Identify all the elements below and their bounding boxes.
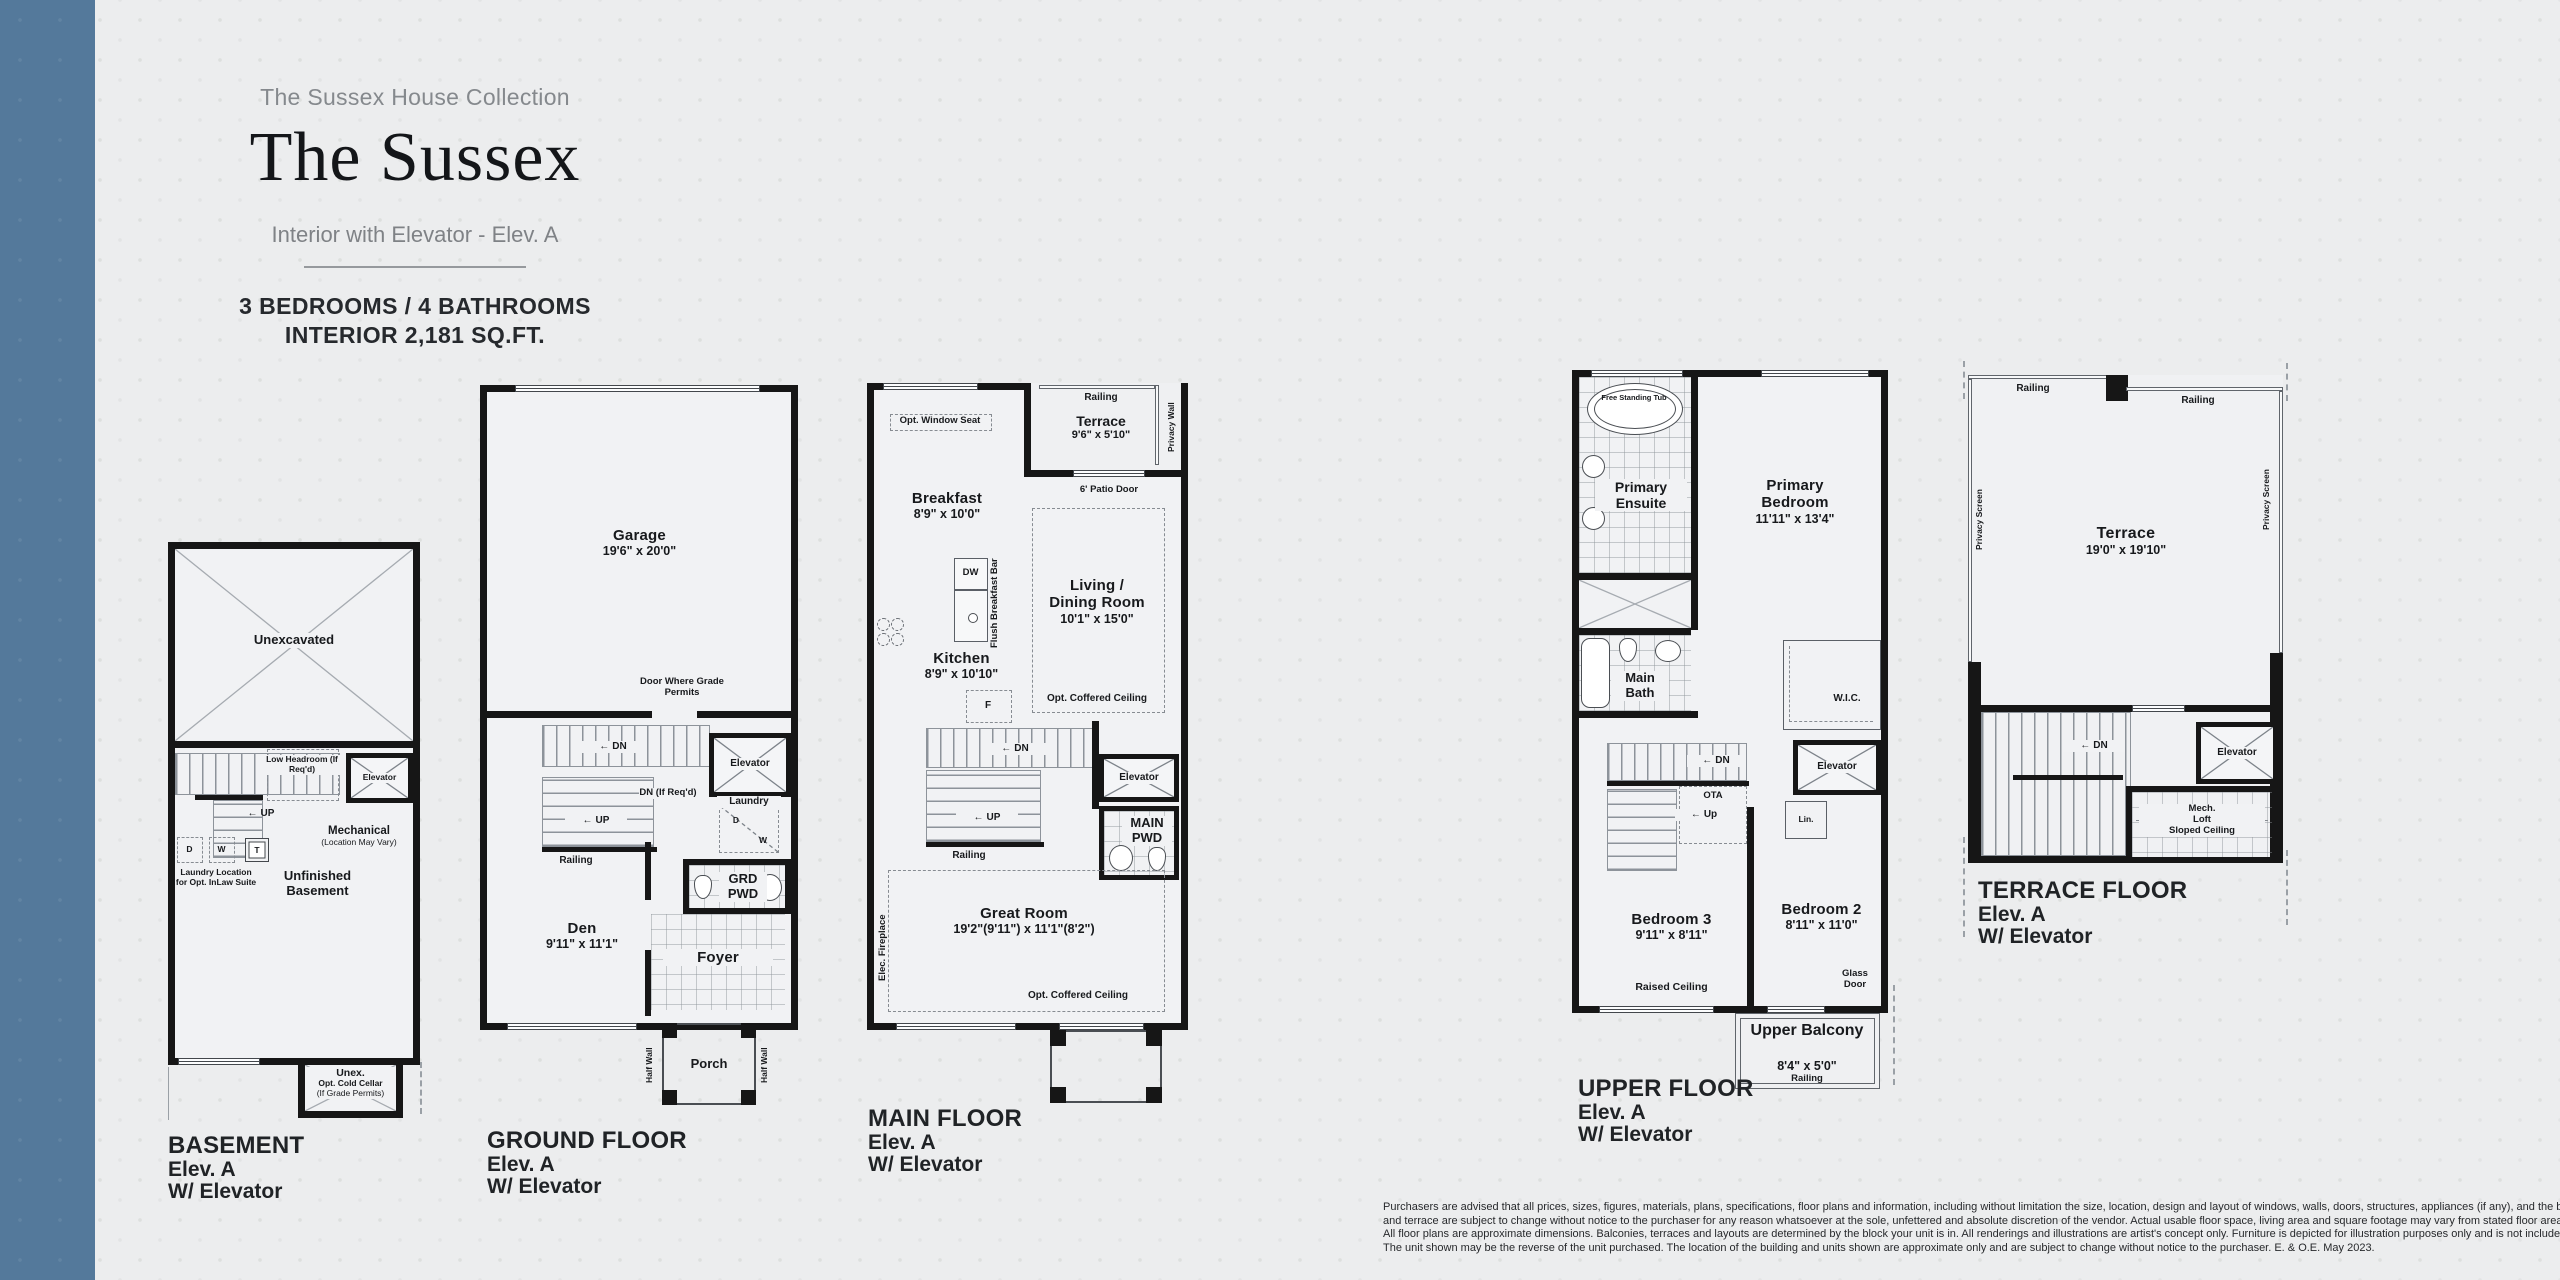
bedroom3-window <box>1599 1006 1714 1013</box>
living-name-line2: Dining Room <box>1033 594 1161 611</box>
shower-cross-lines <box>1579 580 1691 628</box>
porch-post <box>1146 1030 1162 1046</box>
stair-wall <box>1092 721 1099 809</box>
upper-balcony: Upper Balcony 8'4" x 5'0" Railing <box>1735 1013 1880 1089</box>
patio-door-label: 6' Patio Door <box>1069 485 1149 496</box>
direction-arrow-icon: ← <box>248 808 258 819</box>
stair-railing-wall <box>2013 775 2123 780</box>
basement-elevator: Elevator <box>346 753 413 803</box>
mech-loft-area: Mech. Loft Sloped Ceiling <box>2126 786 2278 863</box>
basement-floor-label: BASEMENT Elev. A W/ Elevator <box>168 1133 304 1203</box>
flush-breakfast-bar-label: Flush Breakfast Bar <box>990 558 1001 648</box>
floor-elevation: Elev. A <box>1578 1102 1754 1124</box>
stair-railing-wall <box>926 842 1044 847</box>
disclaimer-line: Purchasers are advised that all prices, … <box>1383 1201 2560 1215</box>
cold-cellar: Unex. Opt. Cold Cellar (If Grade Permits… <box>298 1058 403 1118</box>
disclaimer-line: All floor plans are approximate dimensio… <box>1383 1228 2560 1242</box>
dryer-label: D <box>178 845 201 855</box>
kitchen-island <box>954 590 988 642</box>
main-bath-label: Main Bath <box>1611 671 1669 701</box>
great-room-label: Great Room 19'2"(9'11") x 11'1"(8'2") <box>929 905 1119 937</box>
ensuite-wall <box>1691 377 1698 630</box>
direction-arrow-icon: ← <box>1702 755 1712 766</box>
low-headroom-label: Low Headroom (If Req'd) <box>263 755 341 775</box>
privacy-screen-left <box>1968 379 1972 662</box>
porch-post <box>1050 1030 1066 1046</box>
sink-icon <box>1655 640 1681 662</box>
disclaimer-line: and terrace are subject to change withou… <box>1383 1215 2560 1229</box>
floor-name: GROUND FLOOR <box>487 1128 687 1154</box>
upper-floor-label: UPPER FLOOR Elev. A W/ Elevator <box>1578 1076 1754 1146</box>
terrace-door <box>2132 705 2185 712</box>
unexcavated-area: Unexcavated <box>175 549 413 748</box>
privacy-screen-label-right: Privacy Screen <box>2262 445 2272 555</box>
privacy-wall-label: Privacy Wall <box>1167 393 1177 461</box>
main-floor-plan: Railing Privacy Wall Terrace 9'6" x 5'10… <box>867 383 1188 1030</box>
terrace-floor-plan: Railing Railing Privacy Screen Privacy S… <box>1968 375 2283 863</box>
elevator-label: Elevator <box>1104 772 1174 784</box>
kitchen-dim: 8'9" x 10'10" <box>904 667 1019 681</box>
floor-option: W/ Elevator <box>1978 926 2187 948</box>
cold-cellar-label: Unex. Opt. Cold Cellar (If Grade Permits… <box>305 1067 396 1099</box>
ground-floor-label: GROUND FLOOR Elev. A W/ Elevator <box>487 1128 687 1198</box>
floor-option: W/ Elevator <box>168 1181 304 1203</box>
dn-label: ←DN <box>1687 755 1745 767</box>
sink-icon <box>1109 845 1133 871</box>
railing-label: Railing <box>1061 392 1141 404</box>
linen-closet: Lin. <box>1785 801 1827 839</box>
fridge-box: F <box>966 690 1012 723</box>
terrace-label: Terrace 19'0" x 19'10" <box>2026 525 2226 558</box>
property-dash-line <box>1963 837 1965 937</box>
terrace-floor-label: TERRACE FLOOR Elev. A W/ Elevator <box>1978 878 2187 948</box>
kitchen-label: Kitchen 8'9" x 10'10" <box>904 650 1019 682</box>
bedroom2-label: Bedroom 2 8'11" x 11'0" <box>1764 901 1879 933</box>
floor-elevation: Elev. A <box>168 1159 304 1181</box>
primary-ensuite-label: Primary Ensuite <box>1595 479 1687 511</box>
privacy-screen-label-left: Privacy Screen <box>1975 465 1985 575</box>
laundry-closet: D W <box>719 805 779 853</box>
ensuite-window <box>1591 370 1683 377</box>
laundry-location-note: Laundry Location for Opt. InLaw Suite <box>175 868 257 888</box>
property-line <box>168 1067 169 1120</box>
stairs-up-run <box>1607 789 1677 871</box>
breakfast-name: Breakfast <box>892 490 1002 507</box>
living-dining-zone: Living / Dining Room 10'1" x 15'0" Opt. … <box>1032 508 1165 713</box>
terrace-name: Terrace <box>2026 525 2226 543</box>
window-seat-zone: Opt. Window Seat <box>890 414 992 431</box>
main-bath-area: Main Bath <box>1579 635 1691 711</box>
toilet-icon <box>1619 638 1637 662</box>
breakfast-window <box>883 383 978 390</box>
stair-hall-wall-right <box>2185 705 2270 712</box>
railing-label: Railing <box>545 855 607 867</box>
floor-name: BASEMENT <box>168 1133 304 1159</box>
direction-arrow-icon: ← <box>974 812 984 823</box>
header-divider <box>304 266 526 268</box>
porch-post <box>662 1023 677 1038</box>
disclaimer: Purchasers are advised that all prices, … <box>1383 1201 2560 1255</box>
breakfast-dim: 8'9" x 10'0" <box>892 507 1002 521</box>
terrace-label: Terrace 9'6" x 5'10" <box>1041 413 1161 442</box>
main-terrace-area: Railing Privacy Wall Terrace 9'6" x 5'10… <box>1024 383 1181 477</box>
stairs-down-run <box>1981 712 2131 856</box>
cold-cellar-note: (If Grade Permits) <box>305 1089 396 1099</box>
window-seat-label: Opt. Window Seat <box>891 416 989 427</box>
brochure-page: The Sussex House Collection The Sussex I… <box>0 0 2560 1280</box>
raised-ceiling-label: Raised Ceiling <box>1614 981 1729 993</box>
porch-post <box>1146 1087 1162 1103</box>
main-powder-room: MAIN PWD <box>1099 806 1179 880</box>
direction-arrow-icon: ← <box>583 815 593 826</box>
main-pwd-label: MAIN PWD <box>1122 816 1172 846</box>
den-name: Den <box>522 920 642 937</box>
ota-label: OTA <box>1685 791 1741 802</box>
balcony-railing-label: Railing <box>1748 1074 1866 1085</box>
den-label: Den 9'11" x 11'1" <box>522 920 642 952</box>
railing-label-right: Railing <box>2163 395 2233 407</box>
glass-door-label: Glass Door <box>1831 969 1879 991</box>
primary-bedroom-dim: 11'11" x 13'4" <box>1740 512 1850 526</box>
floor-option: W/ Elevator <box>487 1176 687 1198</box>
railing-label-left: Railing <box>1998 383 2068 395</box>
living-name-line1: Living / <box>1033 577 1161 594</box>
porch-post <box>1050 1087 1066 1103</box>
den-dim: 9'11" x 11'1" <box>522 937 642 951</box>
garage-wall-right <box>697 711 791 718</box>
sink-icon <box>1582 455 1605 478</box>
half-wall-label-right: Half Wall <box>760 1035 770 1095</box>
den-window <box>507 1023 637 1030</box>
shower-area <box>1579 580 1691 635</box>
up-label: ←Up <box>1675 809 1733 821</box>
ensuite-shower-wall <box>1579 573 1691 580</box>
laundry-tub-box: T <box>245 838 269 862</box>
tub-label: Free Standing Tub <box>1598 394 1670 403</box>
garage-door-window <box>515 385 760 392</box>
living-dining-label: Living / Dining Room 10'1" x 15'0" <box>1033 577 1161 626</box>
unexcavated-label: Unexcavated <box>219 633 369 648</box>
stove-burner-icon <box>891 618 904 631</box>
floor-option: W/ Elevator <box>868 1154 1022 1176</box>
stairs-up-run <box>926 770 1041 842</box>
dn-label: ←DN <box>582 741 644 753</box>
ground-porch: Porch <box>662 1023 756 1105</box>
garage-dim: 19'6" x 20'0" <box>547 544 732 558</box>
floor-elevation: Elev. A <box>1978 904 2187 926</box>
elevator-label: Elevator <box>714 758 786 770</box>
property-dash-line <box>2286 363 2288 401</box>
stove-burner-icon <box>877 618 890 631</box>
porch-post <box>741 1090 756 1105</box>
terrace-dim: 19'0" x 19'10" <box>2026 543 2226 557</box>
kitchen-name: Kitchen <box>904 650 1019 667</box>
garage-label: Garage 19'6" x 20'0" <box>547 527 732 559</box>
bathtub-icon <box>1581 638 1610 708</box>
balcony-door <box>1767 1006 1825 1013</box>
ground-powder-room: GRD PWD <box>683 859 791 914</box>
direction-arrow-icon: ← <box>2080 740 2090 751</box>
fireplace-label: Elec. Fireplace <box>878 910 889 985</box>
disclaimer-line: The unit shown may be the reverse of the… <box>1383 1242 2560 1256</box>
upper-elevator: Elevator <box>1793 740 1881 795</box>
terrace-dim: 9'6" x 5'10" <box>1041 429 1161 442</box>
stove-burner-icon <box>877 633 890 646</box>
fridge-label: F <box>967 700 1009 712</box>
main-floor-label: MAIN FLOOR Elev. A W/ Elevator <box>868 1106 1022 1176</box>
wic-label: W.I.C. <box>1818 693 1876 705</box>
mechanical-note: (Location May Vary) <box>303 838 415 848</box>
stove-burner-icon <box>891 633 904 646</box>
side-wall-left <box>1968 662 1981 863</box>
laundry-tub-label: T <box>246 846 268 856</box>
door-grade-note: Door Where Grade Permits <box>637 677 727 699</box>
dryer-box: D <box>177 837 203 863</box>
foyer-label: Foyer <box>663 949 773 966</box>
walk-in-closet: W.I.C. <box>1783 640 1881 730</box>
floor-name: TERRACE FLOOR <box>1978 878 2187 904</box>
terrace-railing <box>1039 385 1155 389</box>
terrace-railing-left <box>1968 375 2108 379</box>
basement-window <box>178 1058 260 1065</box>
porch-door-window <box>1059 1023 1144 1030</box>
bedroom-divider-wall <box>1747 807 1754 1006</box>
direction-arrow-icon: ← <box>599 741 609 752</box>
island-sink-icon <box>968 613 978 623</box>
bedroom2-dim: 8'11" x 11'0" <box>1764 918 1879 932</box>
primary-ensuite-area: Free Standing Tub Primary Ensuite <box>1579 377 1691 573</box>
patio-door <box>1073 470 1145 477</box>
terrace-name: Terrace <box>1041 413 1161 429</box>
floor-name: MAIN FLOOR <box>868 1106 1022 1132</box>
coffered-ceiling-note: Opt. Coffered Ceiling <box>1008 990 1148 1002</box>
terrace-railing-right <box>2126 387 2283 391</box>
floor-elevation: Elev. A <box>487 1154 687 1176</box>
up-direction-label: ←UP <box>233 808 289 820</box>
bath-wall <box>1579 711 1698 718</box>
railing-post-wall <box>2106 375 2128 401</box>
bedroom3-dim: 9'11" x 8'11" <box>1604 928 1739 942</box>
bottom-wall <box>1981 856 2131 863</box>
washer-label: W <box>210 845 233 855</box>
ground-floor-plan: Garage 19'6" x 20'0" Door Where Grade Pe… <box>480 385 798 1030</box>
upper-floor-plan: Free Standing Tub Primary Ensuite Primar… <box>1572 370 1888 1013</box>
floor-option: W/ Elevator <box>1578 1124 1754 1146</box>
accent-sidebar <box>0 0 95 1280</box>
property-dash-line <box>1893 985 1895 1085</box>
property-dash-line <box>420 1062 422 1114</box>
direction-arrow-icon: ← <box>1001 743 1011 754</box>
toilet-icon <box>1148 847 1166 871</box>
floor-name: UPPER FLOOR <box>1578 1076 1754 1102</box>
elevator-label: Elevator <box>2201 747 2273 759</box>
great-room-zone: Great Room 19'2"(9'11") x 11'1"(8'2") Op… <box>888 870 1165 1012</box>
stair-hall-wall-left <box>1981 705 2132 712</box>
porch-post <box>662 1090 677 1105</box>
mech-loft-label: Mech. Loft Sloped Ceiling <box>2139 804 2265 837</box>
upper-balcony-dim: 8'4" x 5'0" <box>1748 1059 1866 1073</box>
elevation-subtitle: Interior with Elevator - Elev. A <box>95 222 735 248</box>
terrace-elevator: Elevator <box>2196 722 2278 784</box>
collection-title: The Sussex House Collection <box>95 84 735 111</box>
porch-label: Porch <box>671 1057 747 1072</box>
great-room-name: Great Room <box>929 905 1119 922</box>
elevator-label: Elevator <box>351 773 408 783</box>
closet-rod-line <box>1789 646 1873 722</box>
railing-label: Railing <box>934 850 1004 862</box>
primary-bedroom-label: Primary Bedroom 11'11" x 13'4" <box>1740 477 1850 526</box>
direction-arrow-icon: ← <box>1691 809 1701 820</box>
basement-plan: Unexcavated Low Headroom (If Req'd) Elev… <box>168 542 420 1065</box>
freestanding-tub-icon: Free Standing Tub <box>1587 383 1683 435</box>
spec-interior-sqft: INTERIOR 2,181 SQ.FT. <box>95 322 735 349</box>
laundry-label: Laundry <box>717 796 781 808</box>
elevator-label: Elevator <box>1798 761 1876 773</box>
up-label: ←UP <box>956 812 1018 824</box>
primary-bedroom-window <box>1761 370 1869 377</box>
dn-label: ←DN <box>2063 740 2125 752</box>
property-dash-line <box>2286 850 2288 925</box>
living-dim: 10'1" x 15'0" <box>1033 612 1161 626</box>
porch-post <box>741 1023 756 1038</box>
breakfast-label: Breakfast 8'9" x 10'0" <box>892 490 1002 522</box>
bedroom2-name: Bedroom 2 <box>1764 901 1879 918</box>
dn-label: ←DN <box>984 743 1046 755</box>
dn-if-reqd-label: DN (If Req'd) <box>639 788 697 799</box>
coffered-ceiling-note: Opt. Coffered Ceiling <box>1033 693 1161 705</box>
washer-label: W <box>753 836 773 846</box>
stair-railing-wall <box>542 847 657 852</box>
great-room-window <box>896 1023 1016 1030</box>
bedroom3-name: Bedroom 3 <box>1604 911 1739 928</box>
garage-wall-left <box>487 711 652 718</box>
mechanical-label: Mechanical (Location May Vary) <box>303 825 415 848</box>
ground-elevator: Elevator <box>709 733 791 797</box>
upper-balcony-label: Upper Balcony <box>1748 1022 1866 1040</box>
dryer-label: D <box>726 816 746 826</box>
dishwasher-box: DW <box>954 558 988 590</box>
primary-bedroom-name: Primary Bedroom <box>1740 477 1850 512</box>
half-wall-label-left: Half Wall <box>645 1035 655 1095</box>
toilet-icon <box>694 875 712 899</box>
washer-box: W <box>209 837 235 863</box>
garage-name: Garage <box>547 527 732 544</box>
page-title: The Sussex <box>95 118 735 198</box>
spec-bedrooms-bathrooms: 3 BEDROOMS / 4 BATHROOMS <box>95 293 735 320</box>
grd-pwd-label: GRD PWD <box>719 872 767 902</box>
dishwasher-label: DW <box>955 568 986 579</box>
foyer-area: Foyer <box>651 914 785 1010</box>
property-dash-line <box>1963 361 1965 399</box>
linen-label: Lin. <box>1786 815 1826 825</box>
main-elevator: Elevator <box>1099 754 1179 802</box>
stairs-up-run <box>542 777 654 847</box>
floor-elevation: Elev. A <box>868 1132 1022 1154</box>
main-porch <box>1050 1030 1162 1103</box>
bedroom3-label: Bedroom 3 9'11" x 8'11" <box>1604 911 1739 943</box>
privacy-screen-right <box>2279 391 2283 653</box>
mech-line3: Sloped Ceiling <box>2139 826 2265 837</box>
great-room-dim: 19'2"(9'11") x 11'1"(8'2") <box>929 922 1119 936</box>
unfinished-basement-label: Unfinished Basement <box>260 869 375 899</box>
up-label: ←UP <box>565 815 627 827</box>
den-wall-upper <box>645 842 651 900</box>
